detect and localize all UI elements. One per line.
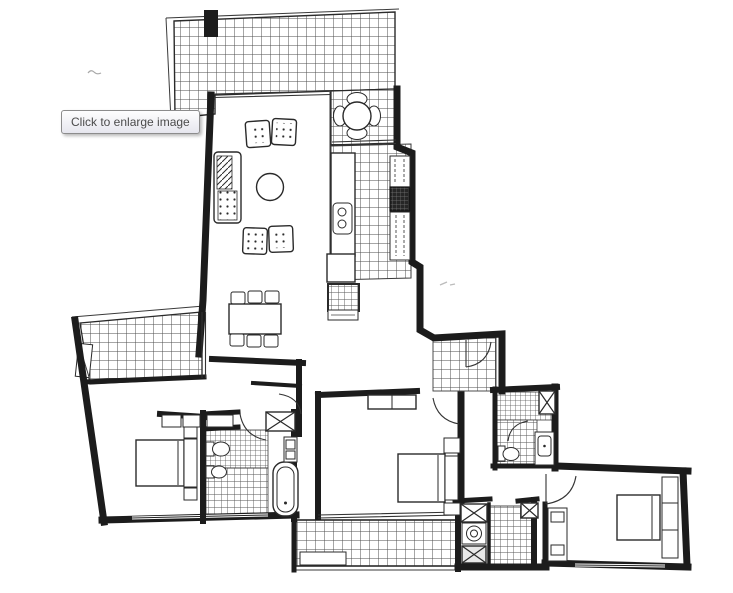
closet	[461, 504, 487, 522]
bedroom-2	[368, 395, 460, 515]
bed	[136, 440, 184, 486]
ottoman	[269, 226, 294, 253]
dining-chair	[231, 292, 245, 304]
wardrobe	[162, 415, 181, 427]
dining-chair	[230, 334, 244, 346]
left-balcony	[72, 306, 204, 384]
nightstand	[184, 488, 197, 500]
wardrobe	[183, 415, 200, 427]
shower	[535, 432, 554, 465]
dining-chair	[264, 335, 278, 347]
vanity	[284, 437, 297, 462]
ottoman	[243, 228, 268, 255]
tooltip-text: Click to enlarge image	[71, 115, 190, 129]
living-room	[214, 118, 297, 254]
bidet	[206, 466, 227, 478]
column	[204, 10, 218, 37]
ottoman	[245, 120, 271, 148]
nightstand	[444, 438, 460, 453]
bed	[617, 495, 660, 540]
cooktop	[390, 187, 409, 211]
bottom-balcony	[296, 520, 458, 570]
tooltip: Click to enlarge image	[61, 110, 200, 134]
toilet	[206, 442, 230, 456]
dining-area	[229, 291, 281, 347]
dining-chair	[247, 335, 261, 347]
floor-plan-image[interactable]	[0, 0, 733, 593]
washing-machine	[462, 523, 486, 544]
cabinet	[327, 254, 355, 282]
headboard	[445, 456, 458, 500]
wardrobe	[662, 477, 678, 558]
linen-closet	[539, 391, 555, 414]
dining-chair	[265, 291, 279, 303]
headboard	[184, 439, 197, 487]
bench	[300, 552, 346, 565]
toilet	[498, 446, 519, 461]
closet	[521, 503, 538, 518]
counter	[390, 156, 410, 187]
bathtub	[273, 462, 298, 516]
dining-table	[229, 304, 281, 334]
linen-closet	[266, 412, 295, 431]
ottoman	[271, 118, 296, 145]
sofa	[214, 152, 241, 223]
wardrobe-niche	[207, 415, 233, 427]
browser-viewport: Click to enlarge image	[0, 0, 733, 593]
entry-floor	[433, 338, 496, 391]
round-table	[343, 102, 371, 130]
nightstand	[444, 503, 460, 515]
coffee-table	[257, 174, 284, 201]
wardrobe	[548, 508, 567, 561]
closet	[462, 546, 486, 563]
counter	[390, 212, 410, 260]
bedroom-3	[548, 477, 678, 561]
dining-chair	[248, 291, 262, 303]
